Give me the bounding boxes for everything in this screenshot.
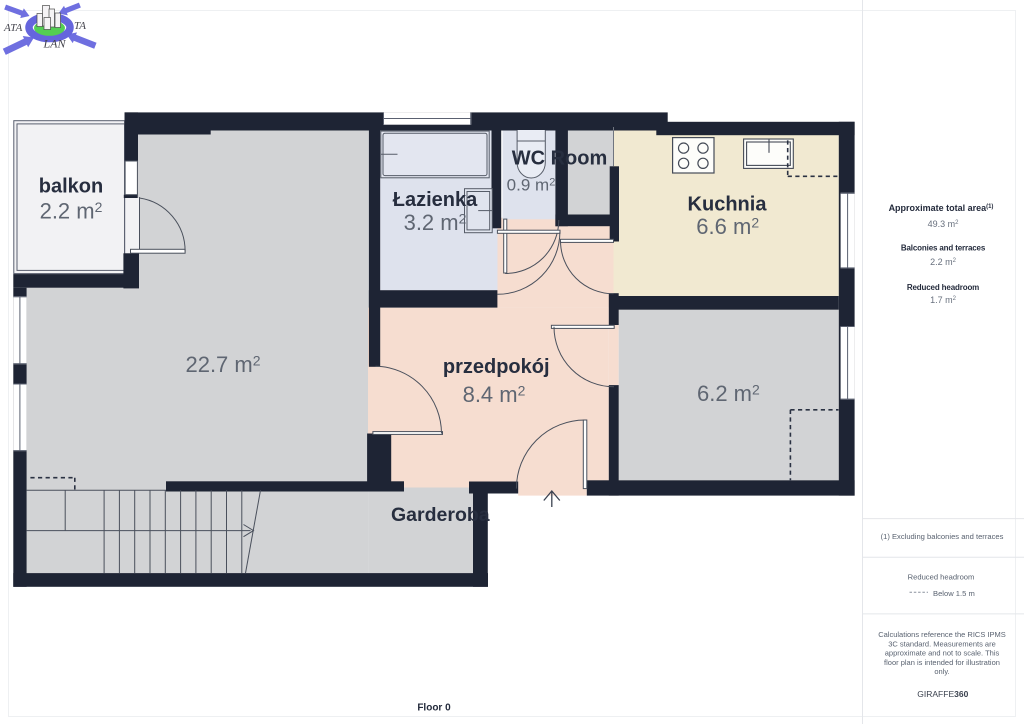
svg-text:0.9 m2: 0.9 m2	[507, 176, 556, 195]
svg-text:3.2 m2: 3.2 m2	[404, 210, 467, 235]
svg-text:ATA: ATA	[3, 22, 23, 34]
svg-text:approximate and not to scale.: approximate and not to scale. This	[885, 649, 1000, 658]
svg-text:Kuchnia: Kuchnia	[688, 194, 768, 216]
svg-text:GIRAFFE360: GIRAFFE360	[917, 689, 968, 699]
svg-text:Approximate total area(1): Approximate total area(1)	[889, 203, 994, 213]
svg-text:Below 1.5 m: Below 1.5 m	[933, 589, 975, 598]
svg-text:2.2 m2: 2.2 m2	[40, 199, 103, 224]
svg-text:3C standard. Measurements are: 3C standard. Measurements are	[888, 639, 996, 648]
svg-text:balkon: balkon	[39, 176, 103, 198]
svg-text:49.3 m2: 49.3 m2	[928, 219, 960, 229]
svg-text:TA: TA	[74, 20, 86, 32]
svg-text:only.: only.	[934, 667, 949, 676]
svg-text:Reduced headroom: Reduced headroom	[908, 573, 975, 582]
svg-text:Reduced headroom: Reduced headroom	[907, 283, 979, 292]
svg-text:8.4 m2: 8.4 m2	[463, 382, 526, 407]
svg-text:WC Room: WC Room	[512, 148, 608, 170]
svg-text:6.6 m2: 6.6 m2	[696, 214, 759, 239]
svg-text:LAN: LAN	[43, 37, 67, 51]
svg-text:Balconies and terraces: Balconies and terraces	[901, 244, 986, 253]
svg-text:(1) Excluding balconies and te: (1) Excluding balconies and terraces	[881, 532, 1004, 541]
svg-text:przedpokój: przedpokój	[443, 356, 550, 378]
svg-text:Łazienka: Łazienka	[393, 189, 478, 211]
svg-text:22.7 m2: 22.7 m2	[185, 352, 260, 377]
svg-text:Garderoba: Garderoba	[391, 504, 490, 526]
svg-text:Floor 0: Floor 0	[417, 702, 451, 713]
svg-text:Calculations reference the RIC: Calculations reference the RICS IPMS	[878, 630, 1006, 639]
svg-text:6.2 m2: 6.2 m2	[697, 381, 760, 406]
svg-text:floor plan is intended for ill: floor plan is intended for illustration	[884, 658, 1000, 667]
